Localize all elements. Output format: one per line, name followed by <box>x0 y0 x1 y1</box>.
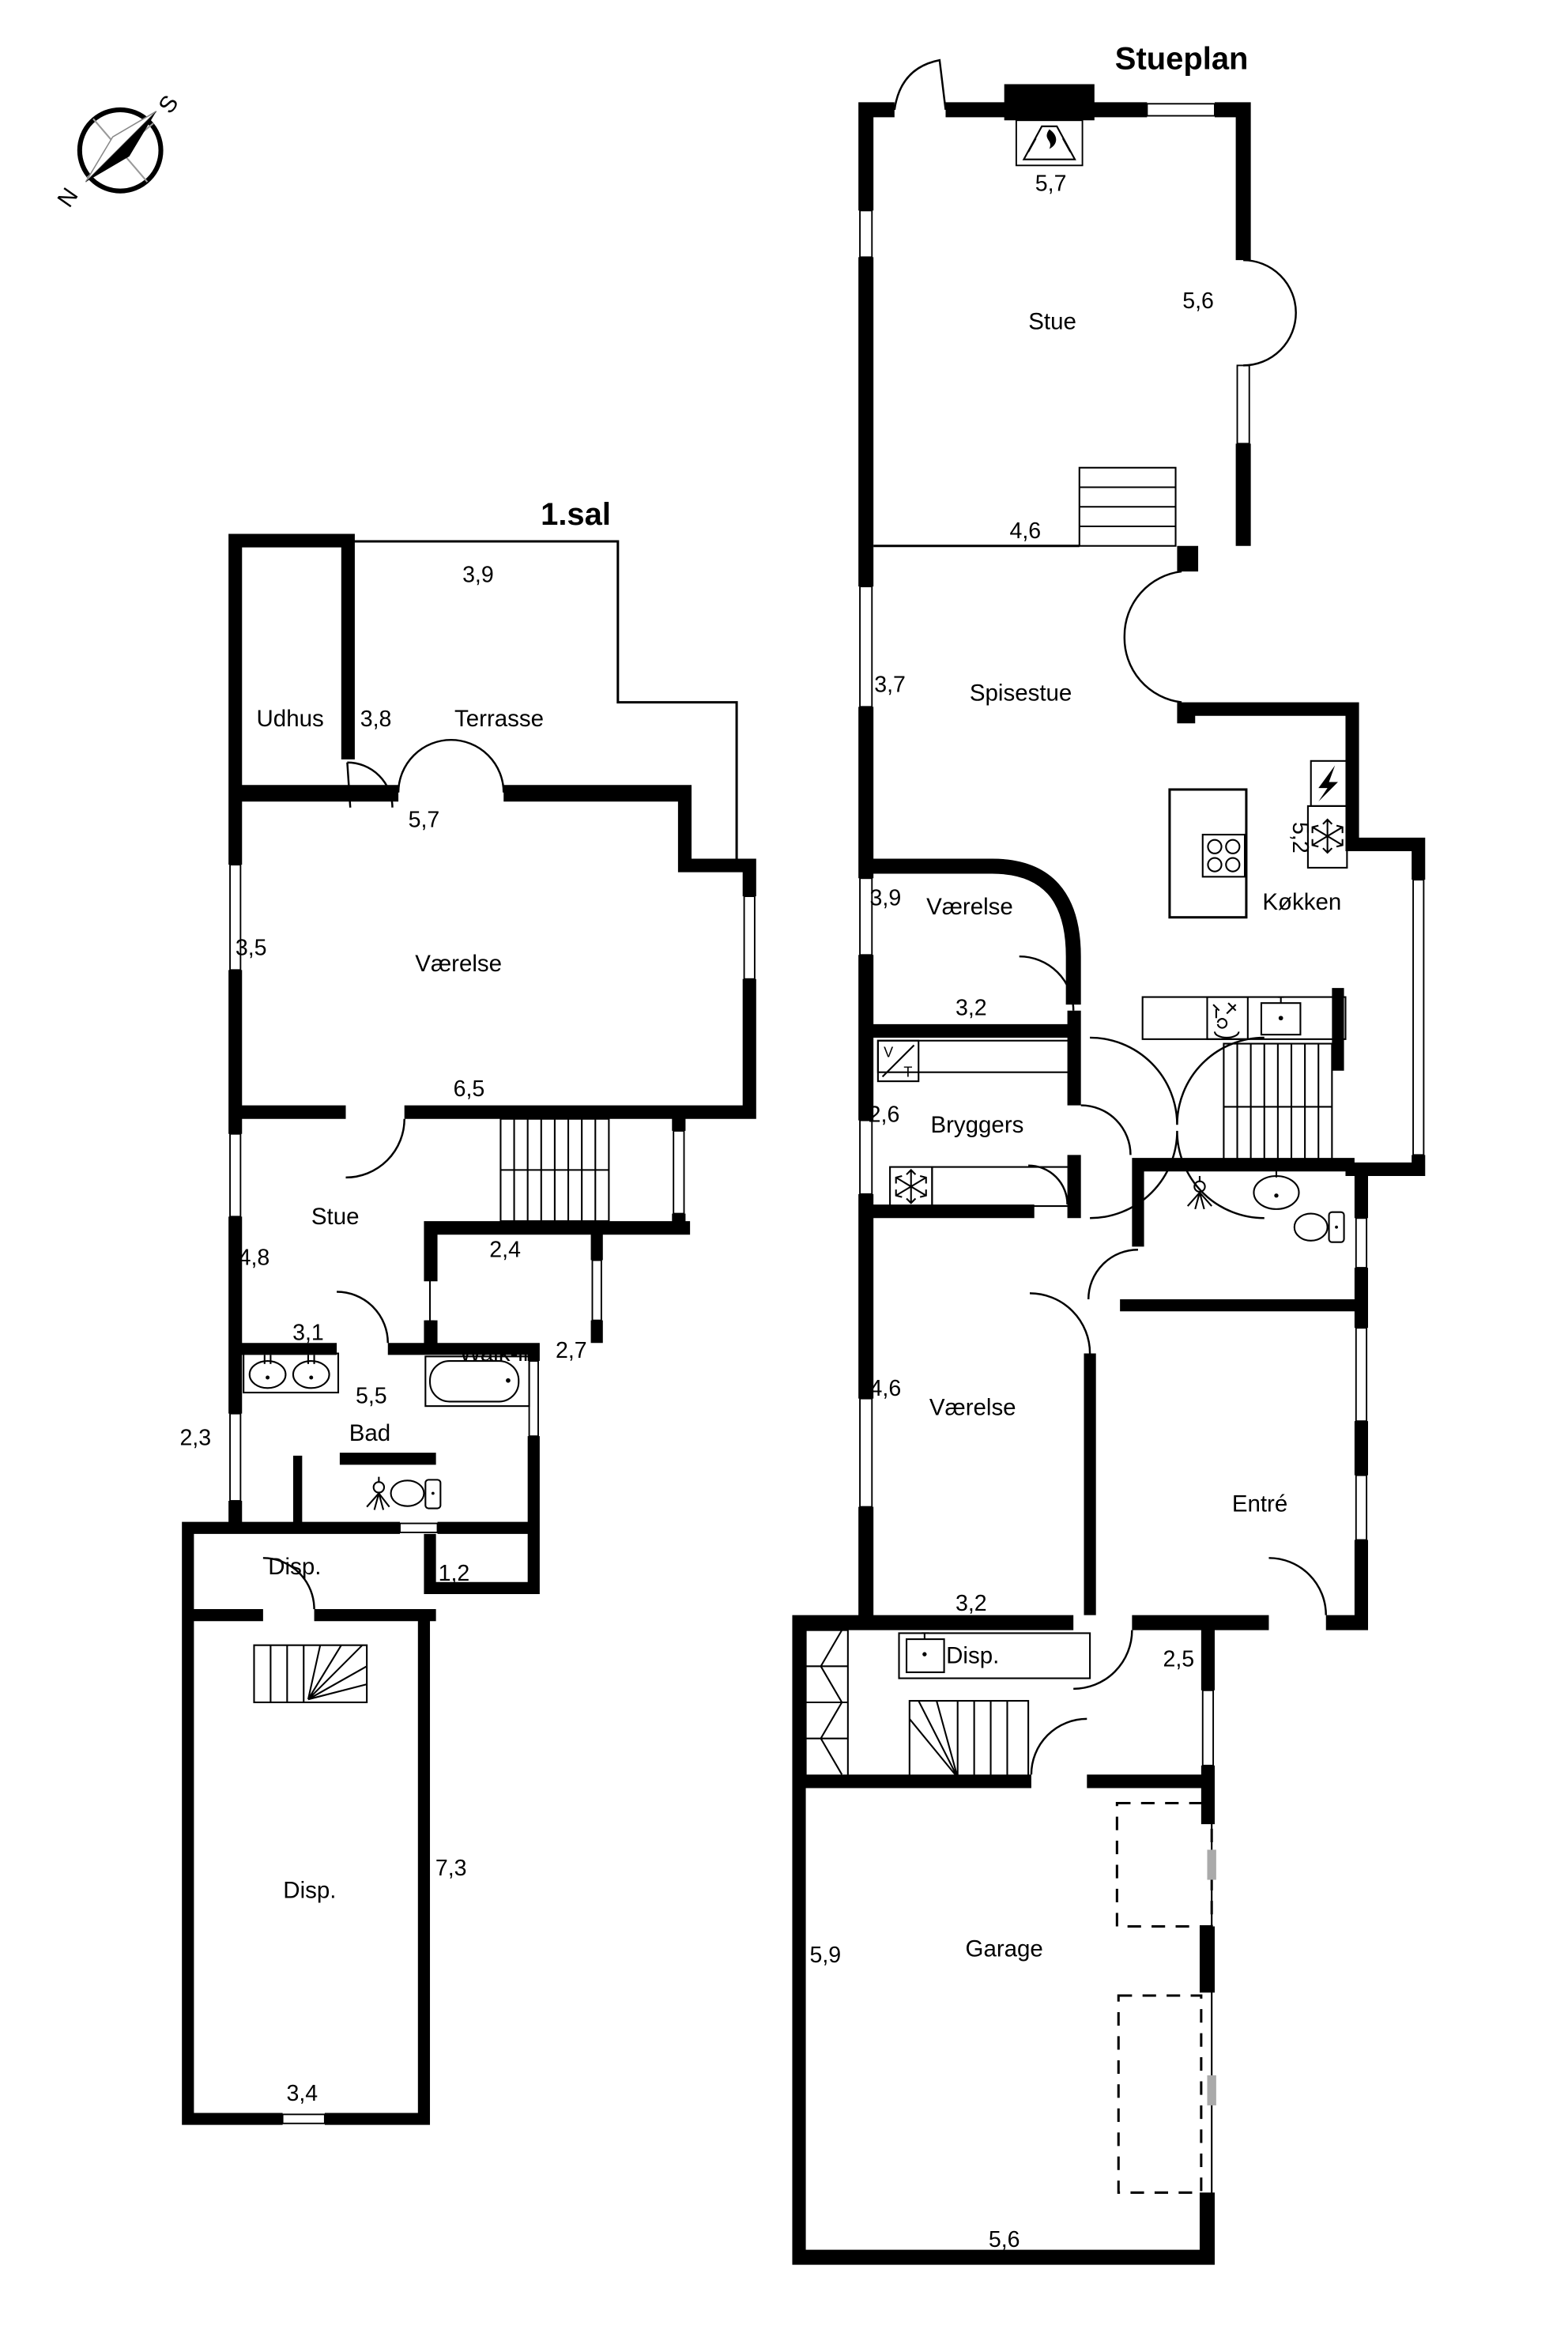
door-arc <box>1020 956 1073 1011</box>
garage-door-handle <box>1207 2075 1216 2105</box>
hall-door-arcs <box>1090 1038 1265 1218</box>
winder-stairs-icon-ground <box>910 1701 1028 1777</box>
wardrobe-icon <box>806 1630 848 1777</box>
toilet-icon <box>391 1479 441 1508</box>
window <box>860 1399 872 1507</box>
dim-59: 5,9 <box>809 1943 841 1968</box>
main-stairs-icon <box>1223 1044 1332 1170</box>
room-label-spisestue: Spisestue <box>970 680 1072 707</box>
double-sink-icon <box>243 1354 338 1393</box>
room-label-stue: Stue <box>1028 309 1076 335</box>
room-label-koekken: Køkken <box>1262 889 1341 915</box>
dishwasher-icon <box>1207 997 1247 1039</box>
room-label-udhus: Udhus <box>257 706 324 732</box>
room-label-garage: Garage <box>966 1936 1043 1962</box>
toilet-icon-ground <box>1295 1212 1344 1242</box>
room-label-vaerelse-south: Værelse <box>929 1395 1016 1421</box>
window <box>673 1131 684 1214</box>
washer-label: V <box>884 1045 893 1061</box>
sliding-door-stop <box>425 1274 434 1280</box>
dim-38: 3,8 <box>360 707 392 732</box>
dim-57: 5,7 <box>409 808 440 833</box>
garage-door-icon <box>1117 1803 1216 2248</box>
dim-32-north: 3,2 <box>955 995 987 1020</box>
dim-27: 2,7 <box>556 1338 587 1363</box>
window <box>860 210 872 257</box>
door-arc <box>1030 1293 1090 1353</box>
window <box>860 586 872 707</box>
winder-stairs-icon <box>254 1645 367 1702</box>
sink-icon-disp <box>906 1633 944 1672</box>
double-door-arc <box>1243 260 1296 365</box>
first-floor-plan: 1.sal <box>179 497 756 2125</box>
double-door-arc <box>398 740 503 793</box>
window <box>1203 1690 1213 1766</box>
sink-icon <box>1261 997 1300 1035</box>
window <box>230 1134 240 1217</box>
stove-icon <box>1203 835 1245 876</box>
room-label-bryggers: Bryggers <box>930 1112 1023 1138</box>
compass-north-label: N <box>52 183 83 212</box>
ground-floor-walls <box>792 85 1425 2265</box>
dim-55: 5,5 <box>356 1383 387 1408</box>
stairs-icon <box>500 1119 609 1221</box>
dim-39: 3,9 <box>462 562 494 587</box>
compass-south-label: S <box>153 91 183 119</box>
room-label-walkin: Walk-in <box>459 1340 536 1366</box>
window <box>1356 1328 1366 1421</box>
double-door-arc <box>1125 571 1182 703</box>
first-floor-title: 1.sal <box>541 497 611 532</box>
window <box>400 1524 438 1532</box>
room-label-bad: Bad <box>349 1420 390 1446</box>
dim-32-south: 3,2 <box>955 1591 987 1616</box>
shower-icon <box>367 1477 390 1510</box>
room-label-stue: Stue <box>311 1204 360 1230</box>
dim-56-top: 5,6 <box>1182 288 1214 314</box>
room-label-entre: Entré <box>1232 1491 1287 1517</box>
dim-46-south: 4,6 <box>870 1376 902 1401</box>
door-arc <box>346 1119 405 1178</box>
window <box>1413 880 1423 1155</box>
dim-39: 3,9 <box>870 885 902 910</box>
bath-sink-icon <box>1253 1167 1298 1209</box>
door-arc <box>1028 1166 1067 1204</box>
freezer-icon <box>1308 806 1347 868</box>
door-arc <box>337 1292 388 1344</box>
first-floor-walls <box>182 533 756 2124</box>
room-label-vaerelse-north: Værelse <box>926 894 1013 920</box>
dim-37: 3,7 <box>874 672 906 697</box>
dim-57: 5,7 <box>1035 171 1067 197</box>
door-arc <box>1081 1106 1131 1155</box>
door-arc <box>1031 1719 1087 1774</box>
dim-65: 6,5 <box>454 1076 485 1102</box>
window <box>1147 104 1215 115</box>
oven-icon <box>1311 761 1347 806</box>
dim-34: 3,4 <box>287 2081 318 2106</box>
room-label-disp-lower: Disp. <box>283 1877 336 1903</box>
kitchen-counter <box>1143 997 1346 1039</box>
door-arc <box>1268 1558 1325 1615</box>
window <box>1238 365 1249 443</box>
compass-icon: S N <box>52 91 183 213</box>
ground-floor-title: Stueplan <box>1115 42 1249 77</box>
floorplan-drawing: S N 1.sal <box>0 0 1568 2352</box>
room-label-disp: Disp. <box>946 1643 999 1669</box>
room-label-disp-upper: Disp. <box>268 1554 321 1580</box>
freezer-icon-bryggers <box>890 1167 1076 1206</box>
window <box>592 1261 601 1321</box>
room-label-vaerelse: Værelse <box>415 951 502 977</box>
door-arc <box>895 60 946 110</box>
window <box>860 1121 872 1194</box>
garage-door-handle <box>1207 1849 1216 1879</box>
dim-24: 2,4 <box>489 1238 521 1263</box>
dim-35: 3,5 <box>236 935 267 960</box>
window <box>283 2114 325 2123</box>
door-arc <box>1088 1249 1138 1299</box>
dim-31: 3,1 <box>292 1320 324 1345</box>
ground-floor-plan: Stueplan <box>792 42 1425 2265</box>
shower-icon-ground <box>1188 1176 1212 1209</box>
dim-26: 2,6 <box>869 1102 900 1127</box>
dim-56-bottom: 5,6 <box>989 2227 1020 2252</box>
dim-48: 4,8 <box>239 1245 270 1270</box>
sliding-door-stop <box>425 1321 434 1327</box>
washer-dryer-icon: V T <box>878 1041 918 1081</box>
door-arc <box>1073 1630 1132 1689</box>
floorplan-page: S N 1.sal <box>0 0 1568 2352</box>
dim-23: 2,3 <box>179 1426 211 1451</box>
dim-25: 2,5 <box>1163 1646 1195 1672</box>
dim-52: 5,2 <box>1287 822 1313 854</box>
window <box>530 1361 538 1436</box>
dim-73: 7,3 <box>435 1856 467 1881</box>
fireplace-icon <box>1016 120 1083 165</box>
dim-46-stue: 4,6 <box>1009 518 1041 544</box>
dim-12: 1,2 <box>439 1561 470 1586</box>
window <box>1356 1218 1366 1268</box>
ground-floor-windows <box>860 104 1423 1766</box>
first-floor-windows <box>230 865 755 2124</box>
window <box>744 896 755 979</box>
room-label-terrasse: Terrasse <box>454 706 544 732</box>
window <box>1356 1476 1366 1540</box>
window <box>230 1414 240 1501</box>
steps-icon <box>1080 468 1176 546</box>
